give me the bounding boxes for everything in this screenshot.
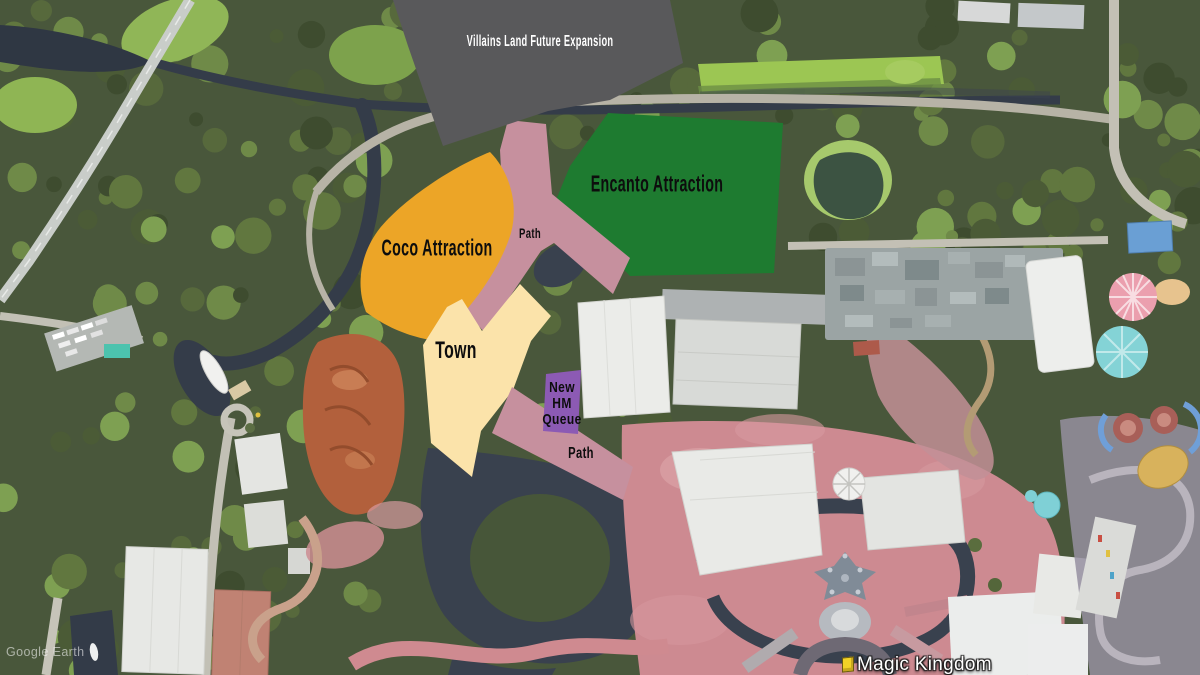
annotated-aerial-map: Villains Land Future Expansion Encanto A…	[0, 0, 1200, 675]
zone-label-villains: Villains Land Future Expansion	[467, 33, 614, 51]
zone-label-town: Town	[435, 337, 476, 365]
zone-label-hm-queue: New HM Queue	[542, 380, 581, 428]
zone-label-path-lower: Path	[568, 445, 594, 463]
zone-label-encanto: Encanto Attraction	[591, 171, 724, 198]
place-marker-icon	[842, 656, 854, 672]
red-roof-building	[853, 340, 880, 356]
blue-roof-building	[1127, 221, 1173, 253]
teal-umbrella	[1034, 492, 1060, 518]
place-label-magic-kingdom[interactable]: Magic Kingdom	[842, 654, 992, 675]
google-earth-watermark: Google Earth	[6, 645, 84, 659]
zone-label-path-upper: Path	[519, 225, 541, 241]
satellite-basemap[interactable]	[0, 0, 1200, 675]
place-label-text: Magic Kingdom	[857, 654, 992, 675]
zone-label-coco: Coco Attraction	[381, 235, 492, 262]
river-island	[470, 494, 610, 622]
teal-canopy	[104, 344, 130, 358]
